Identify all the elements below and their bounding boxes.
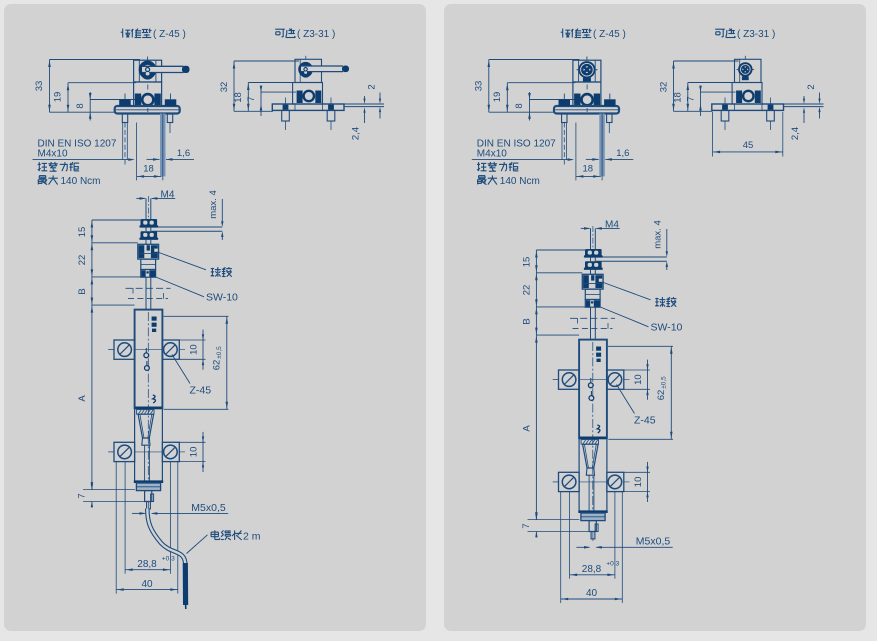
svg-text:62: 62 <box>212 360 223 371</box>
svg-text:( Z-45 ): ( Z-45 ) <box>593 29 626 40</box>
svg-text:7: 7 <box>246 96 257 101</box>
svg-text:7: 7 <box>77 493 88 498</box>
svg-text:10: 10 <box>188 344 199 355</box>
svg-text:10: 10 <box>633 374 644 385</box>
svg-text:40: 40 <box>141 579 153 590</box>
svg-text:32: 32 <box>219 82 230 93</box>
svg-text:18: 18 <box>143 163 154 174</box>
svg-text:( Z3-31 ): ( Z3-31 ) <box>737 29 775 40</box>
svg-text:B: B <box>77 288 88 294</box>
svg-text:22: 22 <box>77 255 88 266</box>
svg-text:28,8: 28,8 <box>582 564 602 575</box>
svg-text:18: 18 <box>583 163 594 174</box>
svg-text:1,6: 1,6 <box>177 148 190 159</box>
svg-text:M4x10: M4x10 <box>38 149 68 160</box>
svg-text:2,4: 2,4 <box>350 127 361 140</box>
svg-text:+0,3: +0,3 <box>606 561 619 568</box>
svg-text:18: 18 <box>233 92 244 103</box>
svg-text:M5x0,5: M5x0,5 <box>636 536 671 548</box>
svg-text:2,4: 2,4 <box>790 127 801 140</box>
svg-text:M5x0,5: M5x0,5 <box>191 502 226 514</box>
svg-text:10: 10 <box>633 477 644 488</box>
svg-text:7: 7 <box>521 523 532 528</box>
svg-text:22: 22 <box>521 285 532 296</box>
svg-text:2 m: 2 m <box>243 531 261 543</box>
svg-text:40: 40 <box>586 588 598 599</box>
svg-text:2: 2 <box>806 84 817 89</box>
svg-text:A: A <box>521 425 532 432</box>
svg-text:Z-45: Z-45 <box>634 414 656 426</box>
svg-text:SW-10: SW-10 <box>206 292 238 304</box>
svg-text:19: 19 <box>53 92 64 103</box>
svg-text:( Z3-31 ): ( Z3-31 ) <box>297 29 335 40</box>
svg-text:SW-10: SW-10 <box>651 322 683 334</box>
svg-text:M4x10: M4x10 <box>477 149 507 160</box>
svg-text:7: 7 <box>685 96 696 101</box>
svg-text:±0,5: ±0,5 <box>216 346 223 359</box>
svg-text:1,6: 1,6 <box>616 148 629 159</box>
svg-text:±0,5: ±0,5 <box>660 376 667 389</box>
svg-text:18: 18 <box>673 92 684 103</box>
svg-text:+0,3: +0,3 <box>162 556 175 563</box>
svg-text:max. 4: max. 4 <box>208 190 219 219</box>
svg-text:33: 33 <box>474 81 485 92</box>
svg-text:45: 45 <box>743 140 754 151</box>
svg-text:8: 8 <box>75 103 86 108</box>
svg-text:15: 15 <box>521 257 532 268</box>
svg-text:32: 32 <box>658 82 669 93</box>
svg-text:max. 4: max. 4 <box>653 220 664 249</box>
svg-text:( Z-45 ): ( Z-45 ) <box>153 29 186 40</box>
svg-text:10: 10 <box>188 447 199 458</box>
svg-text:Z-45: Z-45 <box>190 384 212 396</box>
svg-text:15: 15 <box>77 227 88 238</box>
svg-text:B: B <box>521 318 532 324</box>
svg-text:28,8: 28,8 <box>137 559 157 570</box>
svg-text:8: 8 <box>514 103 525 108</box>
svg-text:2: 2 <box>366 84 377 89</box>
svg-text:A: A <box>77 395 88 402</box>
svg-text:140 Ncm: 140 Ncm <box>61 176 101 187</box>
svg-text:33: 33 <box>34 81 45 92</box>
svg-text:62: 62 <box>656 390 667 401</box>
svg-text:140 Ncm: 140 Ncm <box>500 176 540 187</box>
svg-text:19: 19 <box>492 92 503 103</box>
